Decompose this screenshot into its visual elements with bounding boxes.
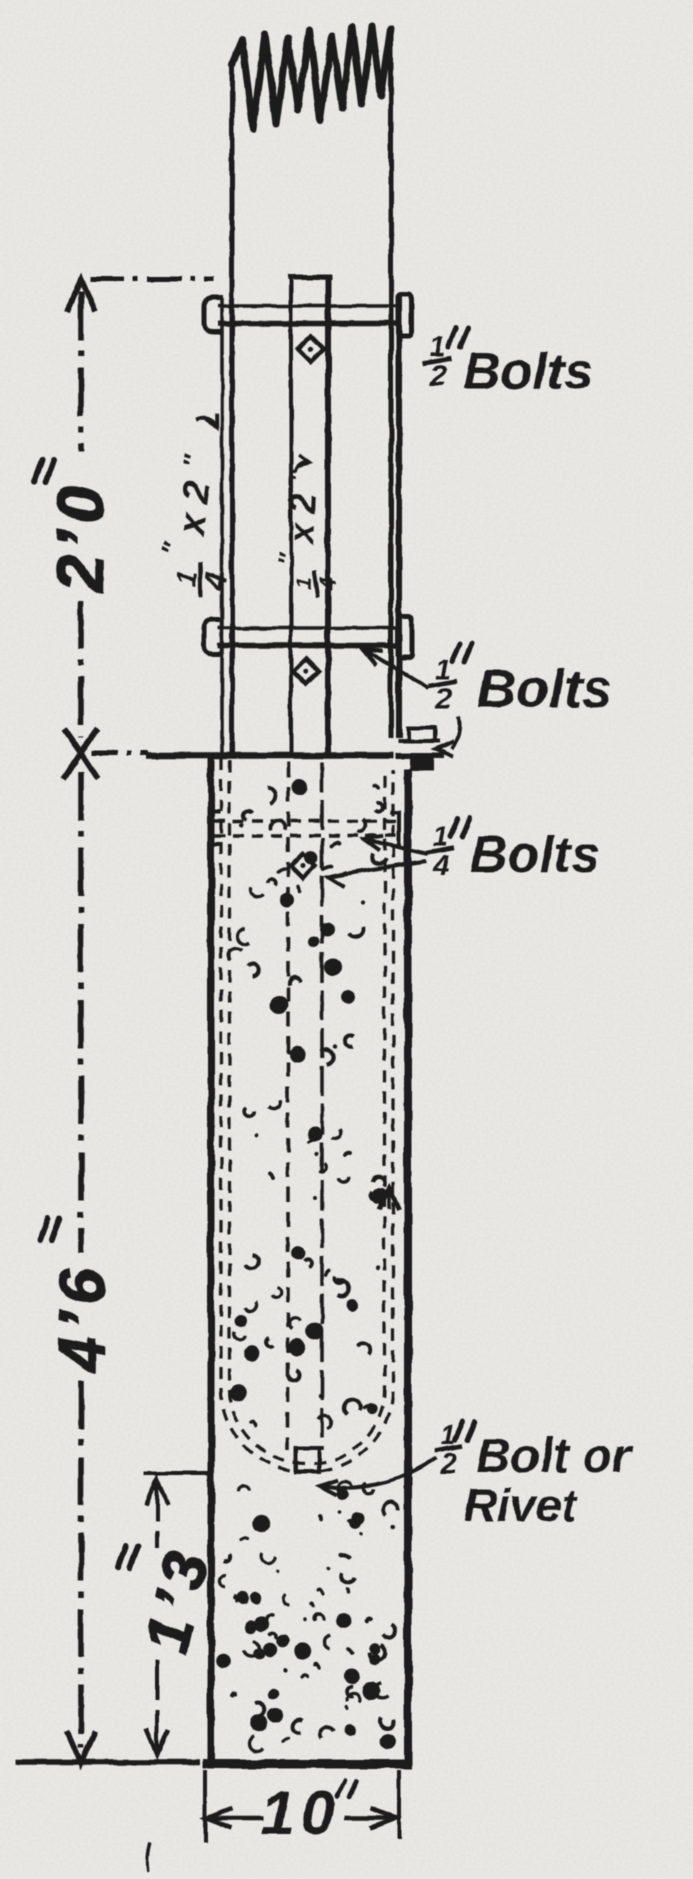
svg-text:2: 2	[435, 683, 453, 716]
svg-text:4: 4	[432, 850, 450, 883]
svg-text:10: 10	[261, 1779, 341, 1847]
svg-text:2’0: 2’0	[43, 479, 117, 594]
svg-text:x 2: x 2	[170, 479, 219, 539]
svg-text:4: 4	[315, 576, 342, 591]
svg-text:2: 2	[440, 1448, 458, 1481]
svg-text:Bolts: Bolts	[470, 826, 600, 884]
svg-text:Rivet: Rivet	[464, 1479, 578, 1531]
svg-text:4’6: 4’6	[46, 1262, 118, 1374]
svg-text:2: 2	[429, 360, 447, 393]
svg-text:Bolt or: Bolt or	[476, 1430, 633, 1483]
svg-text:1: 1	[291, 577, 316, 590]
svg-text:Bolts: Bolts	[477, 659, 612, 719]
svg-text:x 2: x 2	[281, 493, 324, 546]
svg-text:Bolts: Bolts	[463, 343, 593, 401]
